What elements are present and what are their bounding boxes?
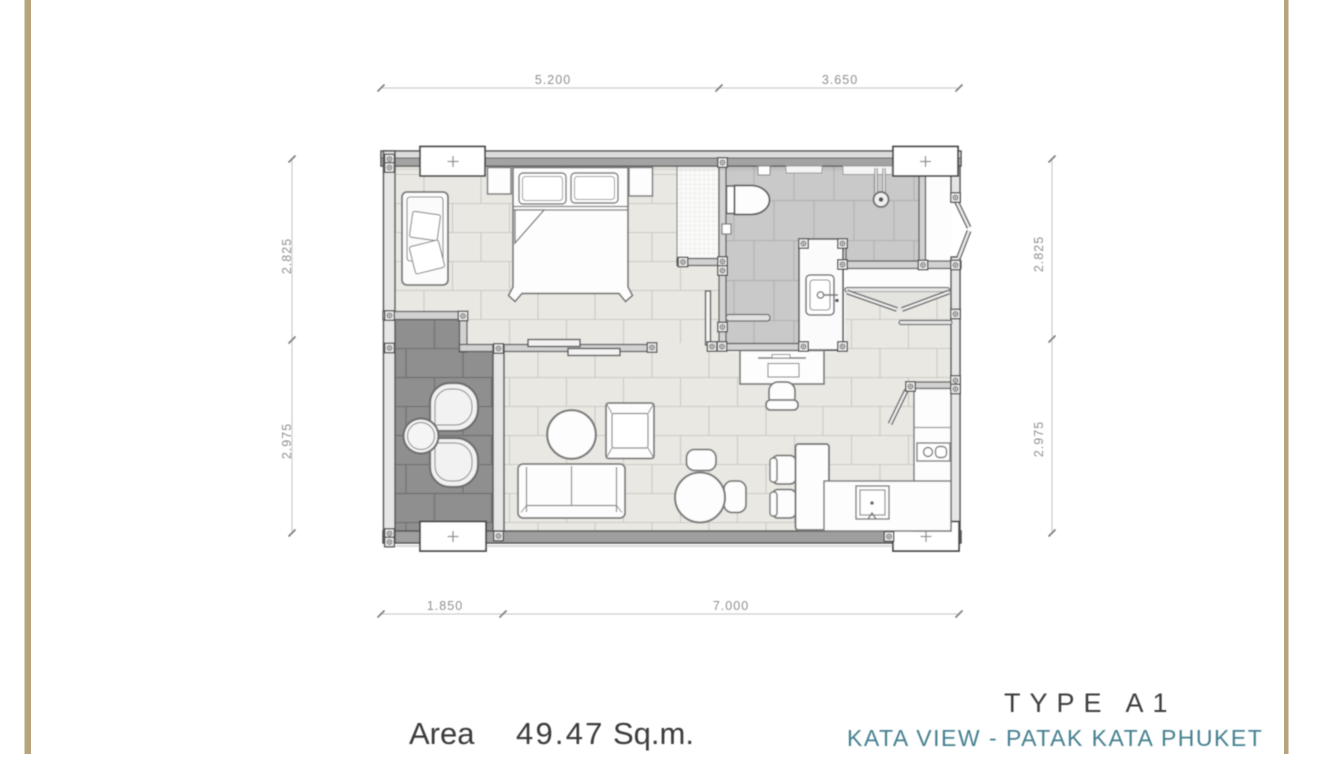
svg-text:3.650: 3.650 bbox=[822, 73, 858, 87]
svg-text:7.000: 7.000 bbox=[713, 599, 749, 613]
svg-text:TYPE A1: TYPE A1 bbox=[1004, 688, 1177, 718]
svg-text:5.200: 5.200 bbox=[535, 73, 571, 87]
svg-text:2.825: 2.825 bbox=[1032, 236, 1046, 272]
svg-text:2.975: 2.975 bbox=[280, 423, 294, 459]
svg-text:KATA VIEW - PATAK KATA PHUKET: KATA VIEW - PATAK KATA PHUKET bbox=[847, 725, 1263, 751]
svg-text:2.975: 2.975 bbox=[1032, 421, 1046, 457]
svg-text:1.850: 1.850 bbox=[427, 599, 463, 613]
svg-text:Sq.m.: Sq.m. bbox=[613, 716, 694, 751]
svg-text:Area: Area bbox=[409, 716, 475, 751]
svg-text:49.47: 49.47 bbox=[516, 716, 605, 751]
svg-text:2.825: 2.825 bbox=[280, 238, 294, 274]
